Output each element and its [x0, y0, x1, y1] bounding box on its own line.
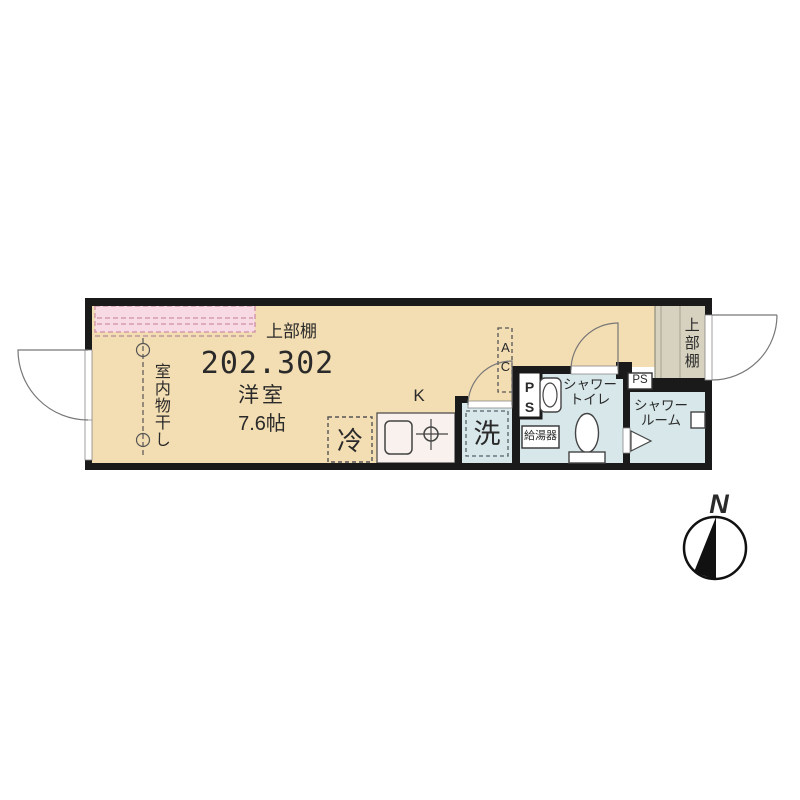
main-room-floor-extension: [512, 305, 655, 367]
washer-door-opening: [468, 401, 512, 408]
wall-outer-top: [85, 298, 712, 306]
toilet-tank: [569, 452, 605, 463]
entrance-door-opening: [705, 315, 712, 380]
entrance-door-swing: [712, 315, 777, 380]
floor-plan: 202.302 洋室 7.6帖 上部棚 室内物干し K 冷 洗 AC PS シャ…: [0, 0, 800, 800]
toilet-door-opening: [571, 366, 618, 374]
pipe-space-label: PS: [522, 377, 537, 418]
entrance-shelf-label: 上部棚: [682, 317, 699, 371]
door-left-opening: [85, 350, 92, 460]
wardrobe-shelf: [95, 306, 255, 332]
washer-label: 洗: [466, 419, 508, 449]
kitchen-label: K: [408, 386, 430, 405]
shower-door-opening: [623, 428, 630, 453]
unit-number: 202.302: [185, 347, 350, 381]
ac-label: AC: [499, 339, 512, 377]
wall-washer-stub: [455, 396, 468, 403]
north-label: N: [698, 489, 740, 519]
water-heater-label: 給湯器: [522, 430, 559, 442]
wall-washer-left: [455, 396, 462, 463]
door-left-swing: [18, 350, 88, 420]
pipe-space-small-label: PS: [628, 374, 652, 387]
shower-fixture: [691, 412, 705, 428]
shower-toilet-label: シャワー トイレ: [558, 377, 622, 407]
room-type-label: 洋室: [197, 384, 327, 408]
fridge-label: 冷: [328, 427, 372, 456]
toilet-bowl: [576, 414, 599, 453]
upper-shelf-label: 上部棚: [266, 322, 322, 341]
shower-room-label: シャワー ルーム: [629, 398, 693, 428]
indoor-laundry-label: 室内物干し: [151, 363, 169, 448]
wall-outer-bottom: [85, 463, 712, 470]
room-size-label: 7.6帖: [197, 413, 327, 435]
